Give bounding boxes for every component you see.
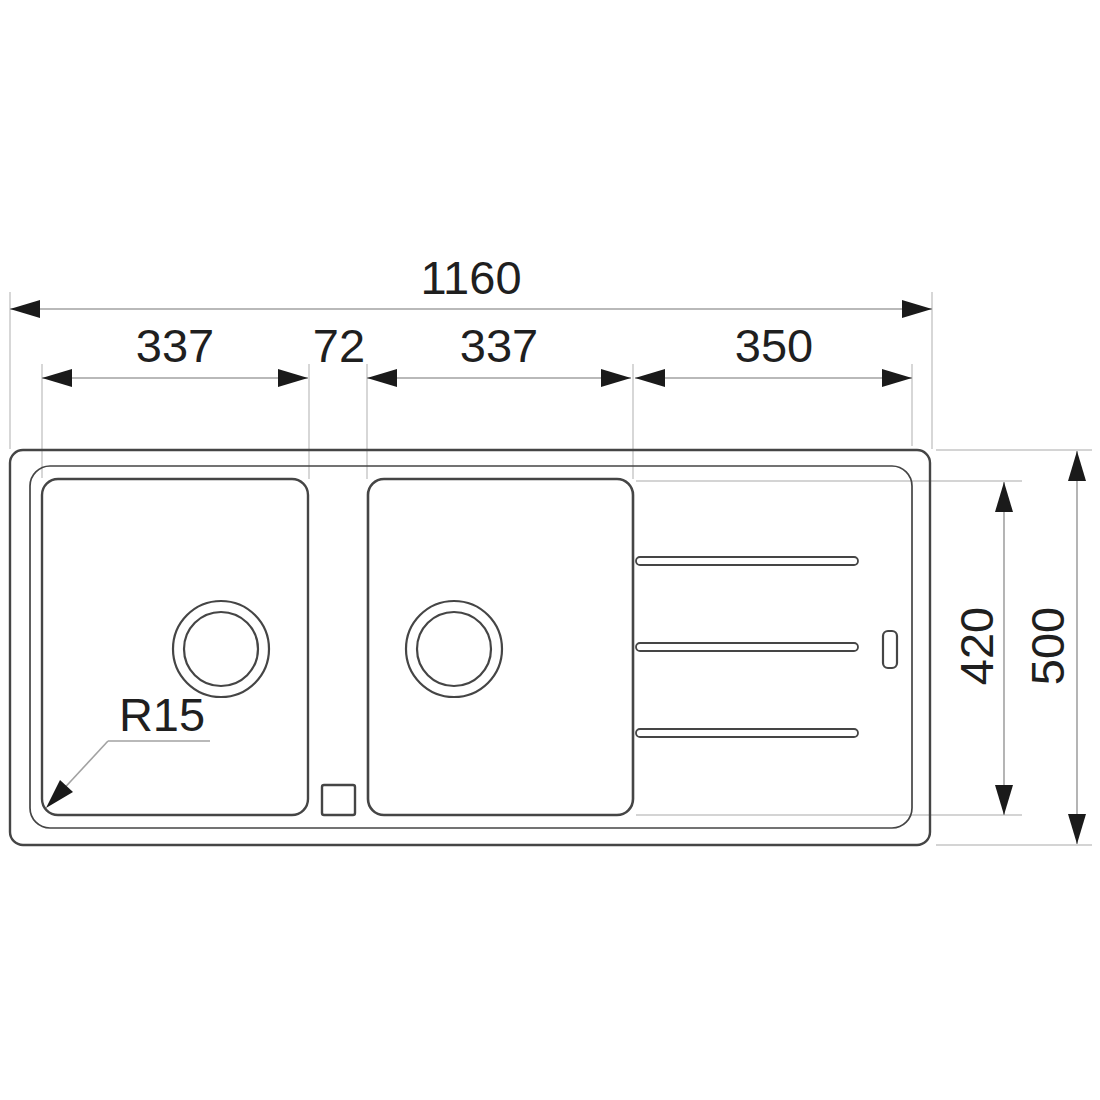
right-drain-outer-circle — [406, 601, 502, 697]
arrow-overall-depth-bottom — [1068, 814, 1086, 844]
left-drain-inner-circle — [184, 612, 258, 686]
divider-fitting-square — [322, 785, 355, 815]
sink-outer-rim — [10, 450, 930, 845]
drainer-groove-2 — [636, 643, 858, 651]
arrowheads — [10, 300, 1086, 844]
arrow-bowl-depth-top — [995, 482, 1013, 512]
dimension-lines — [10, 309, 1077, 844]
label-right-bowl-width: 337 — [460, 319, 538, 372]
right-drain-inner-circle — [417, 612, 491, 686]
label-overall-depth: 500 — [1021, 607, 1074, 685]
arrow-right-bowl-left — [367, 369, 397, 387]
sink-outline — [10, 450, 930, 845]
arrow-right-bowl-right — [601, 369, 631, 387]
arrow-drainer-right — [882, 369, 912, 387]
label-bowl-depth: 420 — [950, 607, 1003, 685]
drainer-groove-1 — [636, 557, 858, 565]
sink-drawing-canvas: 1160 337 72 337 350 420 500 R15 — [0, 0, 1100, 1100]
arrow-overall-depth-top — [1068, 451, 1086, 481]
right-bowl — [368, 479, 633, 815]
arrow-overall-left — [10, 300, 40, 318]
arrow-left-bowl-right — [278, 369, 308, 387]
label-corner-radius: R15 — [119, 688, 205, 741]
label-drainer-width: 350 — [735, 319, 813, 372]
arrow-left-bowl-left — [42, 369, 72, 387]
overflow-slot — [883, 631, 897, 668]
label-overall-width: 1160 — [420, 251, 521, 304]
sink-inner-rim — [30, 466, 912, 828]
left-drain-outer-circle — [173, 601, 269, 697]
label-left-bowl-width: 337 — [136, 319, 214, 372]
sink-technical-drawing: 1160 337 72 337 350 420 500 R15 — [0, 0, 1100, 1100]
arrow-drainer-left — [635, 369, 665, 387]
label-divider-width: 72 — [313, 319, 365, 372]
arrow-bowl-depth-bottom — [995, 785, 1013, 815]
drainer-groove-3 — [636, 729, 858, 737]
arrow-overall-right — [902, 300, 932, 318]
